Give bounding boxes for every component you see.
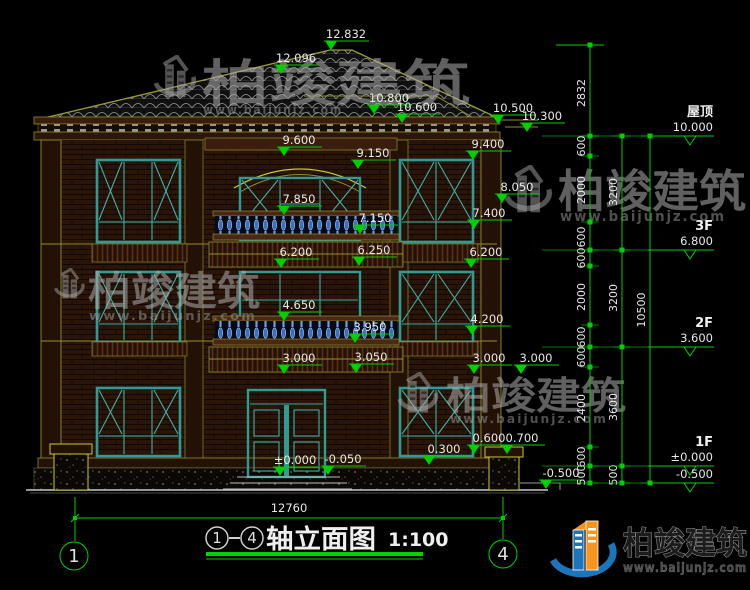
grade-step: [520, 483, 560, 490]
elevation-value: 3.000: [283, 351, 316, 365]
level-triangle-icon: [540, 480, 552, 489]
chain-tick-dot: [588, 220, 593, 225]
floor-elevation: 3.600: [680, 331, 713, 345]
drawing-title-text: 轴立面图: [266, 524, 376, 555]
total-width-dim: 12760: [271, 501, 308, 515]
level-triangle-icon: [515, 365, 527, 374]
drawing-canvas: 柏竣建筑 www.baijunjz.com 柏竣建筑 www.baijunjz.…: [0, 0, 750, 590]
chain-dim-text: 2832: [575, 79, 588, 107]
chain-dim-text: 3600: [607, 393, 620, 421]
title-underline-thick: [206, 552, 423, 556]
floor-marker: 2F3.600: [542, 316, 714, 356]
floor-elevation: ±0.000: [670, 450, 713, 464]
cornice: [34, 117, 500, 140]
elevation-value: 12.096: [276, 51, 316, 65]
floor-level-triangle-icon: [684, 483, 696, 492]
elevation-value: 12.832: [326, 27, 366, 41]
elevation-value: 7.400: [473, 206, 506, 220]
chain-dim-text: 2000: [575, 176, 588, 204]
elevation-value: 3.000: [473, 351, 506, 365]
elevation-value: 3.050: [355, 350, 388, 364]
dimension-chain: 2832: [575, 43, 599, 139]
chain-dim-text: 600: [575, 347, 588, 368]
corner-pilaster-left: [41, 140, 61, 463]
chain-dim-text: 600: [575, 248, 588, 269]
cad-elevation-drawing: 柏竣建筑 www.baijunjz.com 柏竣建筑 www.baijunjz.…: [0, 0, 750, 590]
elevation-value: 10.300: [522, 109, 562, 123]
elevation-value: 3.950: [354, 320, 387, 334]
footer-brand-logo: 柏竣建筑 www.baijunjz.com: [553, 521, 747, 576]
title-block: 1 4 轴立面图 1:100: [206, 524, 448, 559]
elevation-value: 6.200: [470, 245, 503, 259]
chain-tick-dot: [588, 264, 593, 269]
chain-dim-text: 600: [575, 227, 588, 248]
dimension-chains: 2832600200060060020006006002400600500320…: [575, 43, 659, 486]
elevation-annotation: 10.300: [520, 109, 565, 132]
axis-bubble-right: 4: [489, 540, 517, 568]
floor-elevation: 10.000: [673, 120, 713, 134]
chain-tick-dot: [588, 445, 593, 450]
floor-label: 屋顶: [687, 105, 713, 120]
elevation-value: 4.650: [283, 298, 316, 312]
floor-elevation: -0.500: [676, 467, 713, 481]
elevation-value: 6.200: [280, 245, 313, 259]
chain-tick-dot: [588, 365, 593, 370]
floor-label: 1F: [695, 435, 713, 450]
floor-label: 2F: [695, 316, 713, 331]
elevation-value: 9.400: [472, 137, 505, 151]
chain-dim-text: 2000: [575, 283, 588, 311]
elevation-value: 4.200: [471, 312, 504, 326]
elevation-value: 3.000: [520, 351, 553, 365]
floor-level-triangle-icon: [684, 136, 696, 145]
footer-company-name: 柏竣建筑: [623, 526, 747, 562]
elevation-value: 6.250: [358, 243, 391, 257]
elevation-value: -0.050: [324, 452, 361, 466]
elevation-value: 0.600: [473, 431, 506, 445]
chain-dim-text: 3200: [607, 178, 620, 206]
chain-dim-text: 500: [607, 465, 620, 486]
floor-level-triangle-icon: [684, 347, 696, 356]
elevation-value: 7.150: [359, 211, 392, 225]
elevation-value: 9.150: [357, 146, 390, 160]
chain-dim-text: 600: [575, 447, 588, 468]
elevation-annotation: 3.000: [514, 351, 559, 374]
elevation-annotation: 12.832: [324, 27, 369, 50]
floor-label: 3F: [695, 219, 713, 234]
watermark-right-dims: 柏竣建筑 www.baijunjz.com: [507, 165, 746, 225]
title-axis-to: 4: [247, 529, 257, 547]
footer-company-url: www.baijunjz.com: [623, 561, 747, 576]
elevation-value: 0.700: [506, 431, 539, 445]
floor-marker: 3F6.800: [542, 219, 714, 259]
floor-elevation: 6.800: [680, 234, 713, 248]
chain-dim-text: 600: [575, 136, 588, 157]
floor-level-markers: 屋顶10.0003F6.8002F3.6001F±0.000-0.500: [542, 105, 714, 492]
elevation-value: 10.600: [397, 100, 437, 114]
axis-bubble-left: 1: [60, 542, 88, 570]
elevation-value: ±0.000: [274, 453, 317, 467]
elevation-value: 9.600: [283, 133, 316, 147]
chain-dim-text: 600: [575, 327, 588, 348]
elevation-value: -0.500: [542, 466, 579, 480]
chain-dim-text: 500: [575, 465, 588, 486]
title-axis-from: 1: [212, 529, 222, 547]
axis-bubble-right-number: 4: [497, 544, 508, 565]
elevation-value: 8.050: [501, 180, 534, 194]
chain-tick-dot: [588, 154, 593, 159]
chain-dim-text: 3200: [607, 284, 620, 312]
drawing-scale: 1:100: [388, 529, 448, 551]
axis-bubble-left-number: 1: [68, 546, 79, 567]
floor-level-triangle-icon: [684, 250, 696, 259]
watermark-url: www.baijunjz.com: [203, 103, 343, 117]
railing-bottom-rail: [213, 234, 399, 240]
elevation-value: 0.300: [428, 442, 461, 456]
chain-dim-text: 2400: [575, 394, 588, 422]
elevation-value: 7.850: [283, 192, 316, 206]
floor-marker: 屋顶10.000: [542, 105, 714, 145]
chain-tick-dot: [588, 323, 593, 328]
watermark-url: www.baijunjz.com: [89, 309, 257, 323]
level-triangle-icon: [325, 41, 337, 50]
railing-bottom-rail: [213, 339, 399, 345]
chain-dim-text: 10500: [635, 293, 648, 328]
logo-roof: [573, 521, 586, 530]
